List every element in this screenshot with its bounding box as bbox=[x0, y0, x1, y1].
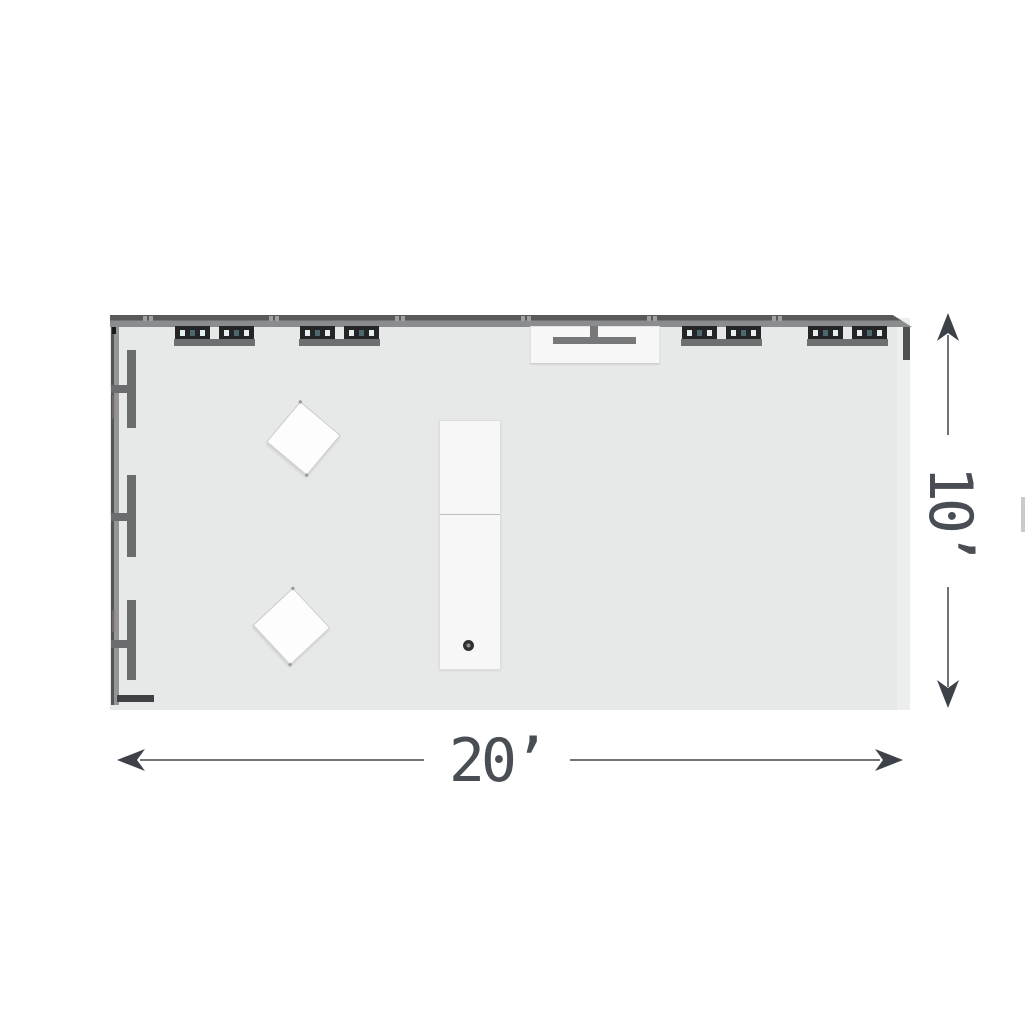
spotlight-block bbox=[300, 326, 335, 339]
spotlight-lens-icon bbox=[877, 330, 882, 336]
counter-knob-icon bbox=[463, 640, 474, 651]
spotlight-block bbox=[219, 326, 254, 339]
spotlight-lens-icon bbox=[349, 330, 354, 336]
wall-seam bbox=[772, 316, 776, 321]
wall-seam bbox=[521, 316, 525, 321]
wall-seam bbox=[275, 316, 279, 321]
floor-edge-highlight bbox=[897, 318, 910, 710]
spotlight-lens-icon bbox=[751, 330, 756, 336]
width-dimension-label: 20’ bbox=[437, 731, 557, 791]
counter-divider bbox=[440, 514, 500, 515]
wall-seam bbox=[143, 316, 147, 321]
shelf-base bbox=[807, 339, 888, 346]
wall-seam bbox=[395, 316, 399, 321]
cropped-edge-artifact bbox=[1021, 497, 1025, 532]
shelf-base bbox=[299, 339, 380, 346]
lighted-shelf-unit bbox=[807, 326, 888, 347]
shelf-base bbox=[174, 339, 255, 346]
spotlight-lens-icon bbox=[200, 330, 205, 336]
spotlight-lens-icon bbox=[244, 330, 249, 336]
side-panel-connector bbox=[111, 640, 136, 648]
spotlight-lens-icon bbox=[857, 330, 862, 336]
wall-patch bbox=[112, 395, 116, 419]
spotlight-lens-icon bbox=[731, 330, 736, 336]
spotlight-lens-icon bbox=[180, 330, 185, 336]
wall-seam bbox=[401, 316, 405, 321]
spotlight-block bbox=[682, 326, 717, 339]
shelf-base bbox=[681, 339, 762, 346]
lighted-shelf-unit bbox=[681, 326, 762, 347]
booth-floor bbox=[110, 318, 910, 710]
spotlight-lens-icon bbox=[741, 330, 746, 336]
spotlight-block bbox=[726, 326, 761, 339]
wall-seam bbox=[653, 316, 657, 321]
wall-seam bbox=[149, 316, 153, 321]
bottom-wall-return bbox=[117, 695, 154, 702]
storage-counter bbox=[439, 420, 501, 670]
spotlight-lens-icon bbox=[823, 330, 828, 336]
floor-plan-canvas: 20’ 10’ bbox=[0, 0, 1025, 1025]
spotlight-lens-icon bbox=[234, 330, 239, 336]
spotlight-lens-icon bbox=[190, 330, 195, 336]
spotlight-lens-icon bbox=[224, 330, 229, 336]
side-panel-connector bbox=[111, 385, 136, 393]
spotlight-lens-icon bbox=[697, 330, 702, 336]
side-panel-connector bbox=[111, 513, 136, 521]
wall-seam bbox=[647, 316, 651, 321]
monitor-mount-bar bbox=[553, 337, 636, 344]
lighted-shelf-unit bbox=[174, 326, 255, 347]
spotlight-lens-icon bbox=[359, 330, 364, 336]
spotlight-lens-icon bbox=[833, 330, 838, 336]
spotlight-lens-icon bbox=[315, 330, 320, 336]
wall-seam bbox=[269, 316, 273, 321]
spotlight-block bbox=[175, 326, 210, 339]
spotlight-block bbox=[808, 326, 843, 339]
right-wall-return bbox=[903, 327, 910, 360]
spotlight-lens-icon bbox=[707, 330, 712, 336]
spotlight-lens-icon bbox=[369, 330, 374, 336]
wall-seam bbox=[778, 316, 782, 321]
spotlight-block bbox=[852, 326, 887, 339]
spotlight-lens-icon bbox=[325, 330, 330, 336]
spotlight-lens-icon bbox=[305, 330, 310, 336]
spotlight-block bbox=[344, 326, 379, 339]
lighted-shelf-unit bbox=[299, 326, 380, 347]
spotlight-lens-icon bbox=[813, 330, 818, 336]
height-dimension-label: 10’ bbox=[920, 454, 980, 574]
wall-patch bbox=[112, 610, 116, 632]
spotlight-lens-icon bbox=[687, 330, 692, 336]
wall-seam bbox=[527, 316, 531, 321]
spotlight-lens-icon bbox=[867, 330, 872, 336]
corner-post bbox=[112, 327, 116, 334]
